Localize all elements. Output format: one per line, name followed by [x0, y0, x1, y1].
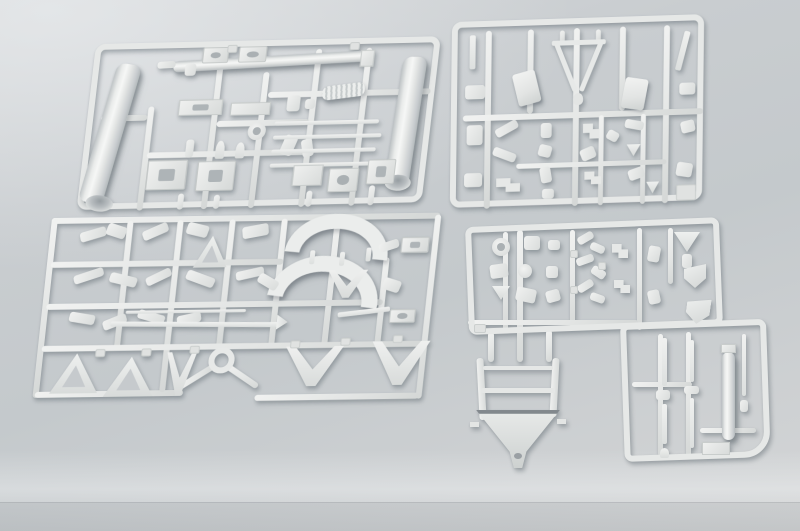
runner-bar: [305, 191, 313, 207]
molded-part: [518, 264, 532, 278]
molded-part: [464, 173, 482, 188]
molded-part: [542, 189, 554, 199]
molded-part: [690, 398, 694, 448]
floor-edge-line: [0, 502, 800, 503]
molded-part: [537, 144, 553, 159]
bracket-triangle: [193, 235, 231, 267]
saddle-clamp: [238, 46, 268, 63]
molded-part: [679, 82, 695, 94]
molded-part: [721, 344, 736, 353]
runner-bar: [136, 106, 154, 210]
sprue-bottom-left: [31, 213, 442, 408]
molded-part: [286, 95, 301, 111]
barrel-tip: [157, 61, 176, 69]
molded-part: [583, 123, 600, 139]
molded-part: [605, 129, 620, 143]
cradle-clamp: [145, 160, 189, 191]
molded-part: [492, 146, 518, 163]
molded-part: [340, 338, 351, 346]
cradle-clamp: [195, 160, 237, 191]
crew-seat-right: [621, 77, 649, 111]
sprue-bottom-right: [452, 206, 772, 470]
molded-part: [185, 269, 217, 288]
molded-part: [400, 237, 430, 253]
molded-part: [682, 254, 692, 268]
molded-part: [570, 250, 578, 258]
molded-part: [690, 340, 694, 382]
molded-part: [184, 64, 196, 76]
sprue-gate-pad: [676, 184, 696, 201]
barrel-open-end: [83, 193, 115, 213]
molded-part: [662, 338, 667, 386]
molded-part: [662, 404, 667, 444]
molded-part: [366, 159, 397, 185]
molded-part: [624, 119, 645, 131]
molded-part: [389, 309, 417, 323]
trail-a-frame: [49, 353, 101, 394]
molded-part: [675, 162, 693, 178]
molded-part: [235, 142, 246, 158]
molded-part: [474, 324, 486, 333]
rod-arrow-tip: [276, 315, 289, 330]
molded-part: [570, 286, 578, 294]
runner-bar: [248, 72, 270, 208]
molded-part: [496, 178, 520, 193]
molded-part: [539, 166, 552, 184]
support-vee: [282, 346, 344, 387]
molded-part: [646, 181, 659, 193]
molded-part: [105, 222, 128, 239]
molded-part: [494, 119, 519, 139]
molded-part: [68, 311, 96, 325]
molded-part: [656, 390, 670, 400]
molded-part: [365, 247, 372, 261]
molded-part: [227, 45, 238, 53]
molded-part: [548, 240, 560, 250]
muzzle-brake: [322, 82, 365, 101]
molded-part: [79, 226, 107, 243]
molded-part: [230, 102, 272, 116]
runner-bar: [213, 195, 221, 209]
carriage-trail-spade: [476, 358, 560, 468]
molded-part: [598, 262, 606, 270]
molded-part: [684, 386, 699, 394]
molded-part: [392, 335, 403, 343]
barrel-collar: [359, 50, 375, 67]
molded-part: [242, 223, 269, 240]
cleaning-rod: [110, 322, 279, 328]
hub-disc: [247, 122, 267, 140]
molded-part: [95, 349, 106, 357]
floor-edge-shade: [0, 503, 800, 531]
gun-barrel-half-left: [78, 62, 143, 204]
molded-part: [740, 400, 748, 412]
molded-part: [142, 222, 170, 242]
molded-part: [73, 267, 104, 285]
molded-part: [680, 119, 696, 134]
molded-part: [465, 85, 485, 100]
photo-canvas: [0, 0, 800, 531]
pulley-disc: [492, 238, 510, 256]
runner-bar: [367, 185, 375, 205]
saddle-clamp: [202, 47, 230, 64]
recoil-cylinder: [722, 352, 735, 440]
crew-seat-left: [512, 69, 542, 107]
runner-bar: [254, 393, 419, 401]
molded-part: [647, 289, 662, 305]
cradle-plate: [178, 99, 224, 116]
molded-part: [541, 123, 552, 138]
molded-part: [466, 125, 482, 145]
molded-part: [524, 236, 540, 250]
molded-part: [469, 35, 475, 69]
sprue-top-left: [76, 36, 441, 210]
molded-part: [349, 42, 360, 50]
molded-part: [489, 263, 509, 279]
molded-part: [742, 334, 746, 396]
molded-part: [304, 99, 315, 109]
sprue-top-right: [450, 14, 704, 208]
trail-a-frame: [103, 356, 157, 397]
molded-part: [626, 144, 640, 156]
u-bracket: [327, 168, 360, 193]
molded-part: [126, 309, 247, 314]
molded-part: [579, 145, 597, 162]
molded-part: [290, 340, 301, 348]
molded-part: [702, 442, 730, 455]
runner-bar: [176, 194, 184, 210]
molded-part: [675, 31, 691, 71]
runner-bar: [216, 219, 236, 347]
runner-bar: [51, 259, 284, 268]
molded-part: [546, 266, 558, 278]
molded-part: [660, 448, 669, 458]
molded-part: [189, 346, 200, 354]
towing-frame: [551, 39, 606, 97]
molded-part: [145, 267, 173, 287]
molded-part: [185, 222, 210, 239]
molded-part: [141, 348, 152, 356]
molded-part: [291, 164, 324, 186]
